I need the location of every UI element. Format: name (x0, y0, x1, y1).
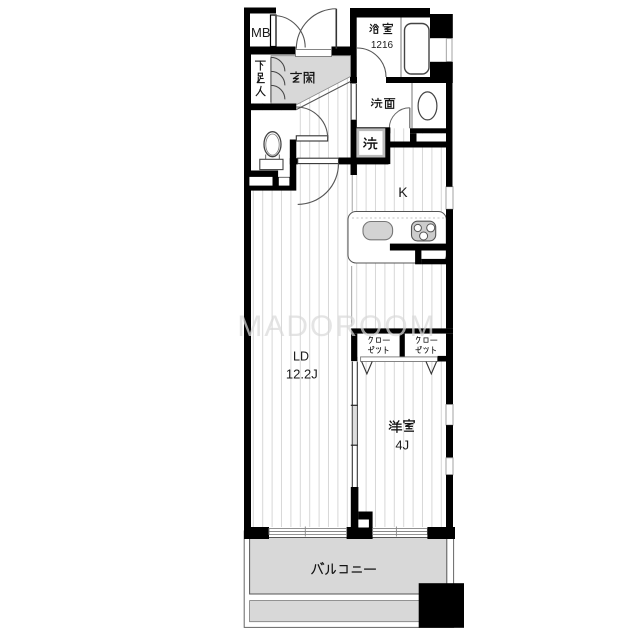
svg-text:12.2J: 12.2J (286, 366, 318, 381)
svg-text:MB: MB (251, 25, 271, 40)
svg-text:K: K (398, 184, 408, 200)
svg-text:1216: 1216 (371, 40, 394, 51)
svg-text:4J: 4J (395, 437, 409, 452)
svg-text:MADOROOM: MADOROOM (237, 310, 436, 343)
svg-text:LD: LD (293, 350, 309, 364)
